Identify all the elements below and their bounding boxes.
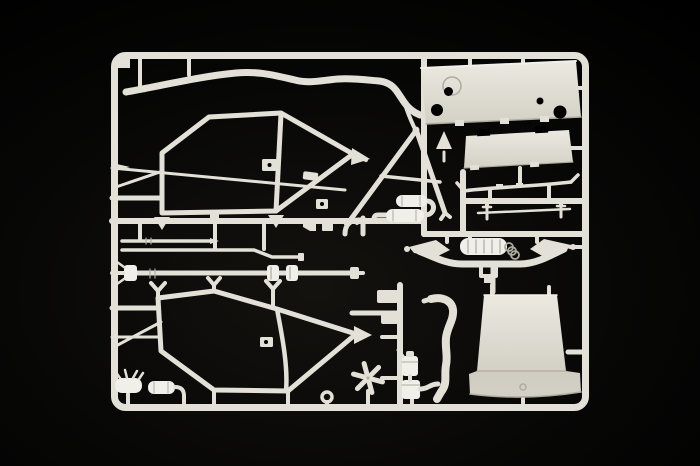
photo-background: [0, 0, 700, 466]
firewall-panel-part: [421, 61, 581, 126]
sprue-photo: [0, 0, 700, 466]
photo-canvas: [0, 0, 700, 466]
